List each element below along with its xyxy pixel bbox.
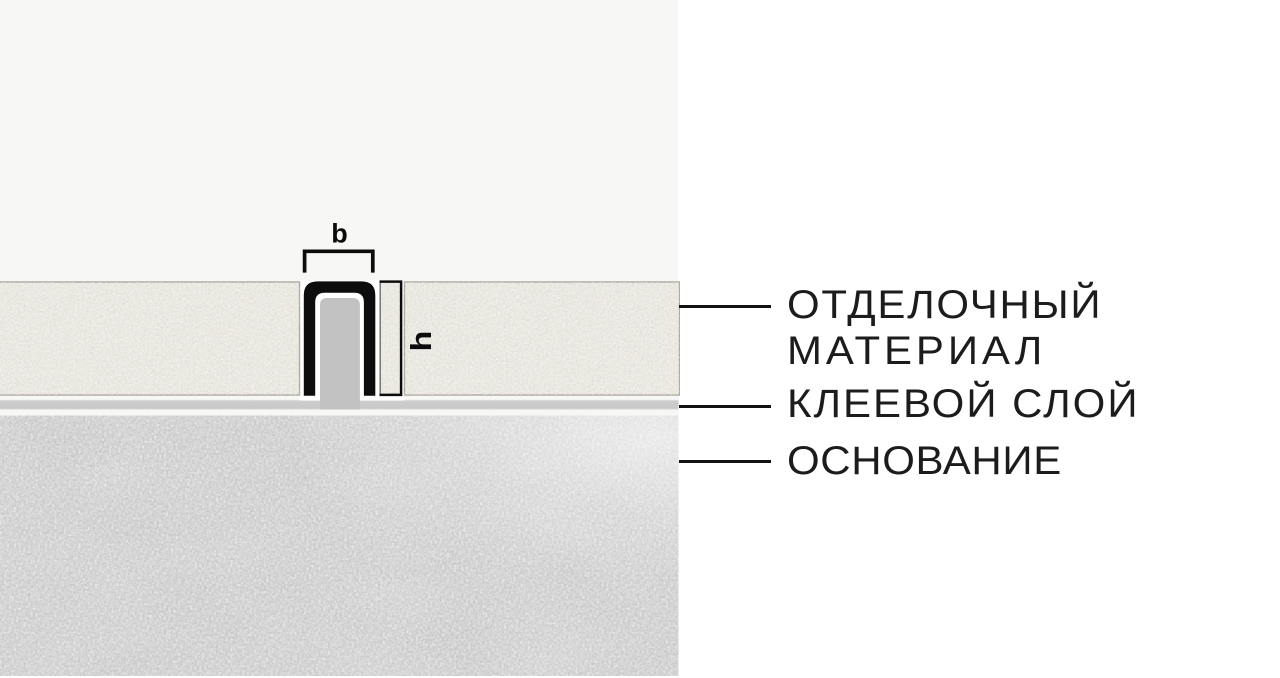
svg-text:b: b: [331, 219, 348, 249]
svg-text:h: h: [404, 331, 437, 352]
